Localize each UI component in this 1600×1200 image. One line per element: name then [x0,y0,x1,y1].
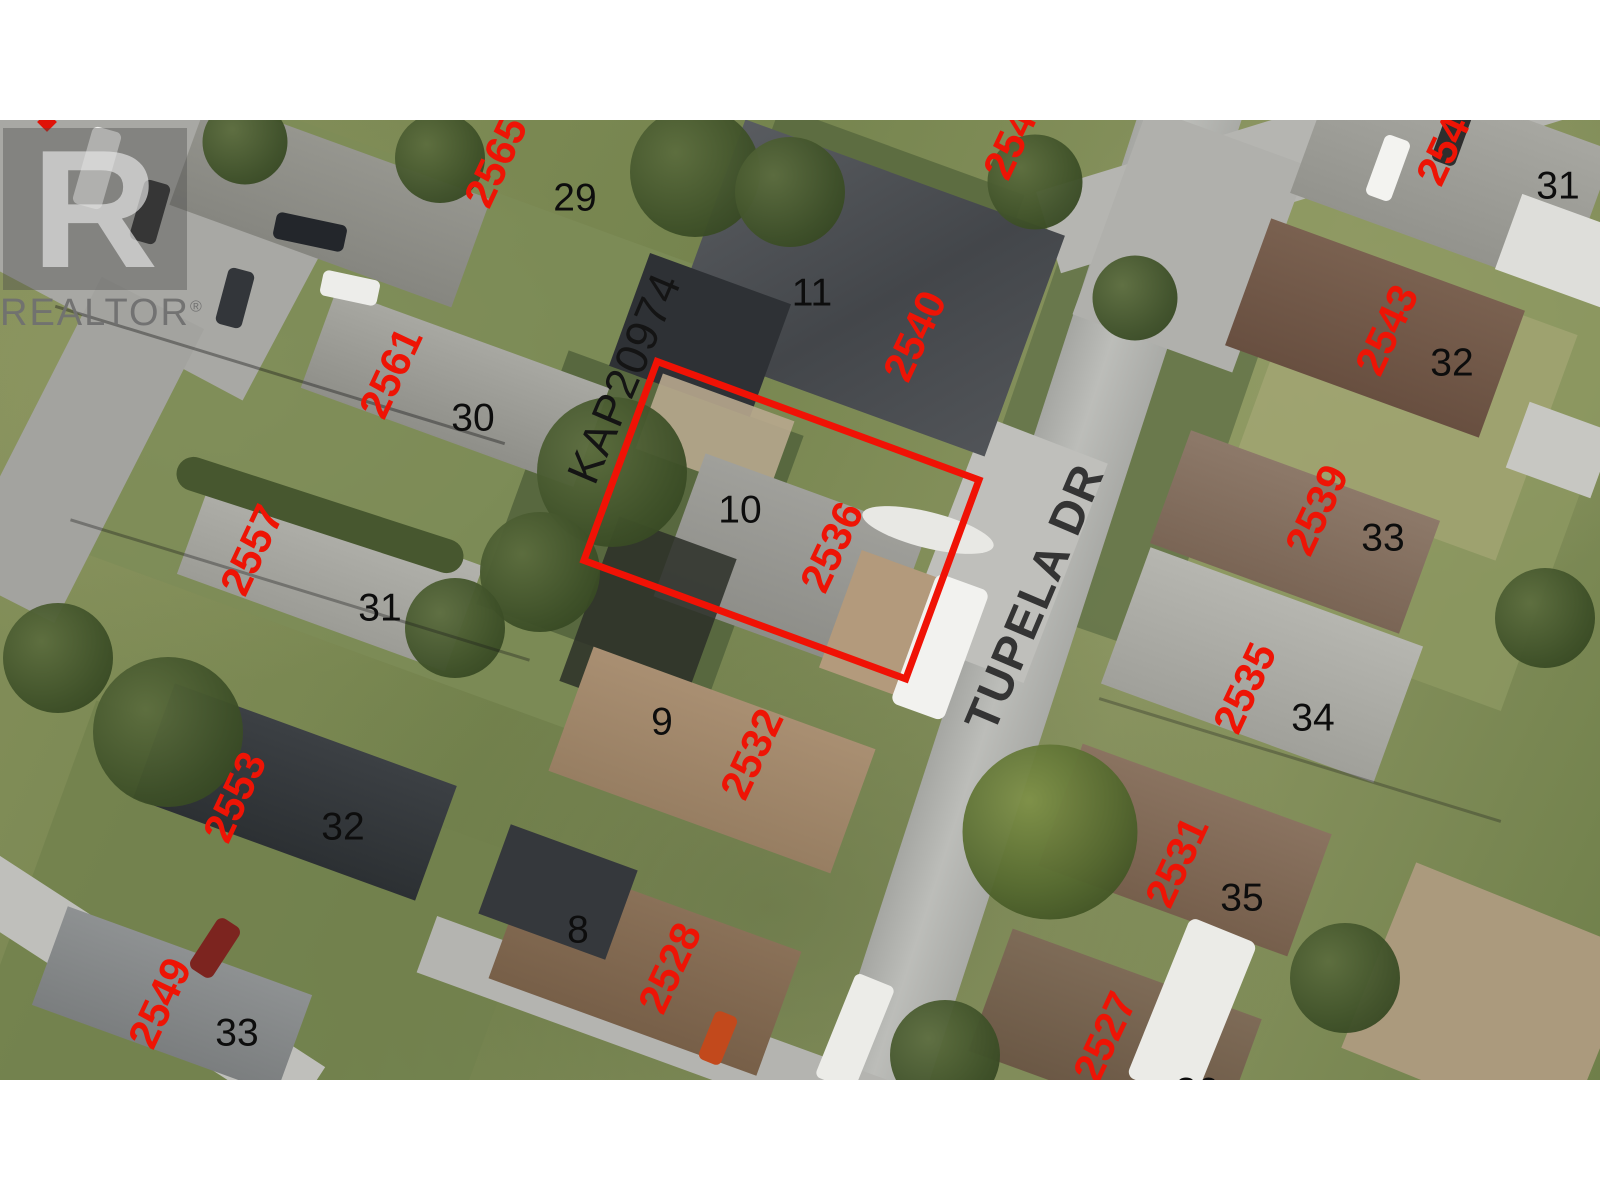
lot-number-32-left: 32 [321,808,364,847]
house-number-2528: 2528 [631,917,709,1019]
realtor-wordmark-text: REALTOR [0,292,190,334]
house-number-2565: 2565 [457,120,535,213]
lot-number-30: 30 [451,399,494,438]
house-number-2544-clipped: 2544 [976,120,1054,185]
house-number-2531: 2531 [1138,811,1216,913]
realtor-logo-r: R [31,125,158,293]
lot-number-11: 11 [792,274,833,313]
lot-number-36-clipped: 36 [1175,1073,1218,1081]
lot-number-33-right: 33 [1361,519,1404,558]
lot-number-9: 9 [651,703,673,742]
aerial-imagery: 2565256125572553254925442540253625322528… [0,120,1600,1080]
house-number-2535: 2535 [1206,637,1284,739]
registered-trademark-symbol: ® [190,298,204,315]
aerial-map-canvas: 2565256125572553254925442540253625322528… [0,0,1600,1200]
house-number-2532: 2532 [713,703,791,805]
house-number-2549: 2549 [121,952,199,1054]
lot-number-34: 34 [1291,699,1334,738]
house-number-2540: 2540 [876,285,954,387]
street-name-tupela-dr: TUPELA DR [957,457,1112,738]
lot-number-31-right: 31 [1536,167,1579,206]
realtor-wordmark: REALTOR® [0,292,230,335]
house-number-2561: 2561 [352,322,430,424]
realtor-watermark: R REALTOR® [0,120,230,350]
lot-number-31-left: 31 [358,589,401,628]
lot-number-29: 29 [553,179,596,218]
house-number-2553: 2553 [196,746,274,848]
house-number-2547-clipped: 2547 [1409,120,1487,191]
lot-number-8: 8 [567,911,589,950]
lot-number-33-left: 33 [215,1014,258,1053]
house-number-2527: 2527 [1066,986,1144,1080]
house-number-2539: 2539 [1278,459,1356,561]
house-number-2557: 2557 [213,499,291,601]
lot-number-32-right: 32 [1430,344,1473,383]
lot-number-35: 35 [1220,879,1263,918]
realtor-logo-box: R [3,128,187,290]
house-number-2543: 2543 [1348,279,1426,381]
